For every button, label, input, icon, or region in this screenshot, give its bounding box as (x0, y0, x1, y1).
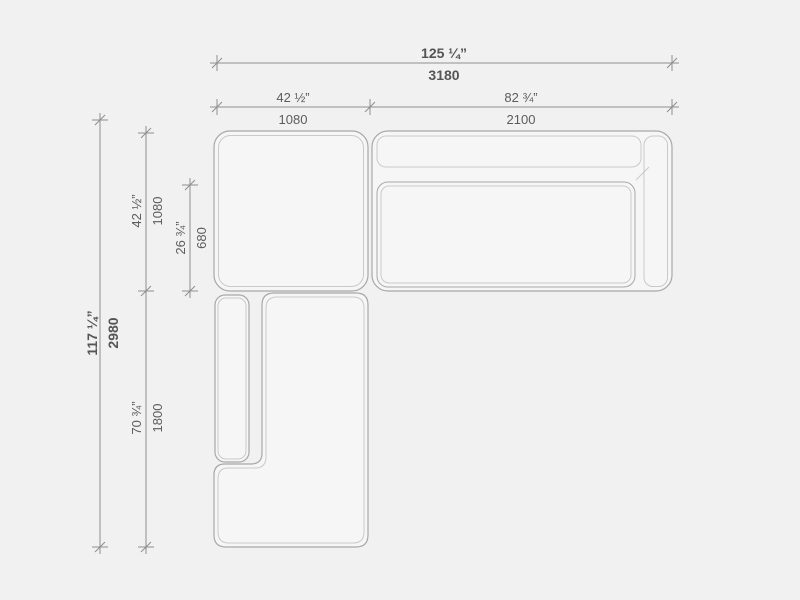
sofa-plan-svg: 125 ¼” 3180 42 ½” 1080 82 ¾” 2100 117 ¼”… (0, 0, 800, 600)
dimension-ticks (92, 55, 677, 552)
corner-depth-metric-label: 1080 (150, 197, 165, 226)
chaise-length-metric-label: 1800 (150, 404, 165, 433)
sofa-width-metric-label: 2100 (507, 112, 536, 127)
right-sofa-module (372, 131, 672, 291)
corner-width-imperial-label: 42 ½” (276, 90, 309, 105)
dimension-lines (92, 55, 679, 554)
seat-depth-metric-label: 680 (194, 227, 209, 249)
corner-width-metric-label: 1080 (279, 112, 308, 127)
corner-module-outline (214, 131, 368, 291)
chaise-armrest-outline (215, 295, 249, 462)
overall-width-metric-label: 3180 (428, 67, 459, 83)
overall-width-imperial-label: 125 ¼” (421, 45, 467, 61)
chaise-length-imperial-label: 70 ¾” (129, 401, 144, 434)
sofa-width-imperial-label: 82 ¾” (504, 90, 537, 105)
overall-depth-metric-label: 2980 (105, 317, 121, 348)
dimension-drawing-canvas: 125 ¼” 3180 42 ½” 1080 82 ¾” 2100 117 ¼”… (0, 0, 800, 600)
sofa-module-outline (372, 131, 672, 291)
corner-depth-imperial-label: 42 ½” (129, 194, 144, 227)
sofa-drawing (214, 131, 672, 547)
seat-depth-imperial-label: 26 ¾” (173, 221, 188, 254)
corner-module (214, 131, 368, 291)
chaise-module (214, 293, 368, 547)
overall-depth-imperial-label: 117 ¼” (84, 310, 100, 355)
